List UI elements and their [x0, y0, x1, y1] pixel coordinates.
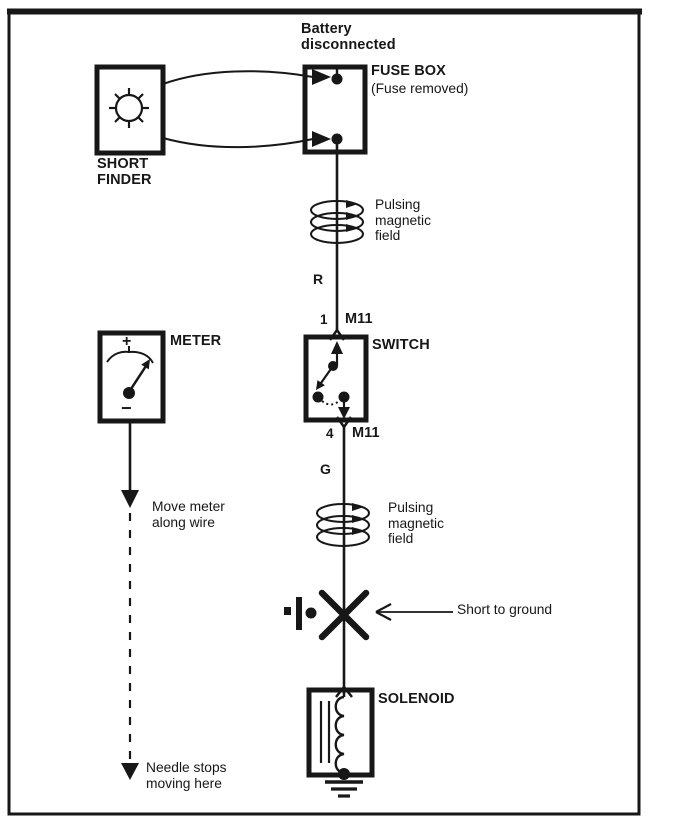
chassis-ground-icon — [325, 782, 363, 796]
meter-travel-arrow-dashed — [121, 513, 139, 780]
meter-minus-sign: − — [121, 399, 132, 417]
connector-bottom-pin-label: 4 — [326, 426, 334, 441]
battery-note-label: Battery disconnected — [301, 21, 413, 53]
needle-stops-label: Needle stops moving here — [146, 760, 258, 791]
switch-label: SWITCH — [372, 337, 430, 353]
short-finder-label: SHORT FINDER — [97, 156, 169, 188]
wiring-diagram-graphics — [0, 0, 688, 838]
fuse-box-label: FUSE BOX — [371, 63, 446, 79]
solenoid-box — [309, 690, 372, 775]
short-finder-box — [97, 67, 163, 153]
move-meter-label: Move meter along wire — [152, 499, 248, 530]
short-callout-arrow — [376, 604, 453, 620]
meter-plus-sign: + — [122, 334, 131, 350]
switch-contacts-icon — [313, 354, 351, 419]
connector-top-name-label: M11 — [345, 311, 373, 327]
connector-bottom-name-label: M11 — [352, 425, 380, 441]
solenoid-label: SOLENOID — [378, 691, 455, 707]
short-to-ground-label: Short to ground — [457, 602, 552, 618]
wire-color-top-label: R — [313, 271, 323, 287]
solenoid-coil-icon — [321, 697, 350, 780]
ground-probe-icon — [284, 597, 317, 630]
meter-needle-icon — [107, 346, 153, 399]
pulsing-field-bottom-label: Pulsing magnetic field — [388, 500, 472, 547]
connector-top-pin-label: 1 — [320, 312, 328, 327]
fuse-box-sublabel: (Fuse removed) — [371, 81, 468, 97]
meter-travel-arrow-solid — [121, 421, 139, 508]
pulsing-field-top-label: Pulsing magnetic field — [375, 197, 459, 244]
sun-burst-icon — [109, 88, 149, 128]
wire-color-bottom-label: G — [320, 461, 331, 477]
meter-label: METER — [170, 333, 221, 349]
connector-top-symbol — [330, 330, 344, 354]
diagram-page: Battery disconnected FUSE BOX (Fuse remo… — [0, 0, 688, 838]
